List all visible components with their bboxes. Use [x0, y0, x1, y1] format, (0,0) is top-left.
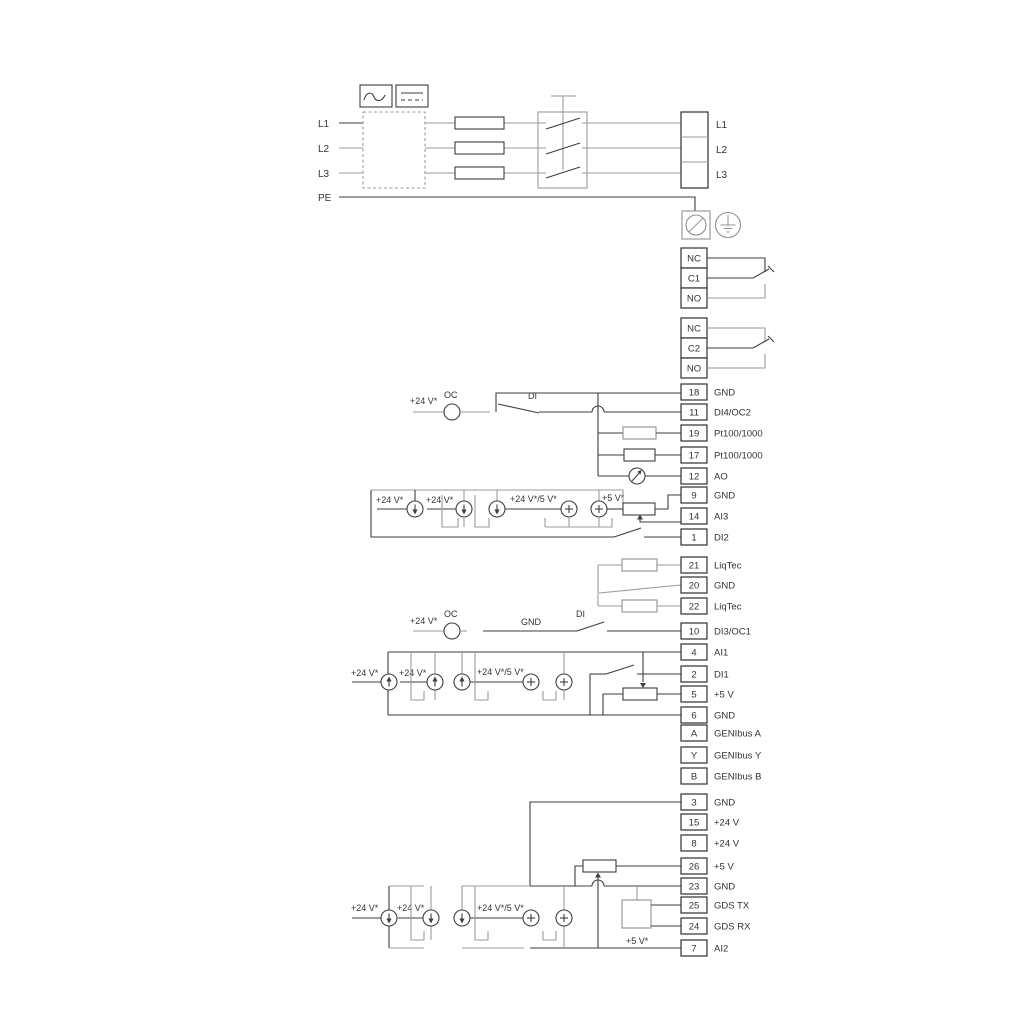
terminal-number: 20: [689, 581, 700, 592]
terminal-number: 12: [689, 472, 700, 483]
open-collector-icon: [444, 623, 460, 639]
terminal-number: 5: [691, 690, 696, 701]
terminal-number: 18: [689, 388, 700, 399]
ai2-supply-block: +24 V* +24 V*: [351, 886, 572, 948]
resistor: [624, 449, 655, 461]
terminal-label: AO: [714, 472, 728, 483]
terminal-number: 14: [689, 512, 700, 523]
mains-section: L1 L2 L3 PE: [318, 85, 741, 239]
terminal-number: 2: [691, 670, 696, 681]
dc-symbol-icon: [396, 85, 428, 107]
terminal-label: GDS TX: [714, 901, 750, 912]
terminal-number: 19: [689, 429, 700, 440]
screw-terminal-icon: [682, 211, 710, 239]
terminal-label: +5 V: [714, 862, 734, 873]
relay-terminal: NO: [687, 364, 701, 375]
terminal-label: DI4/OC2: [714, 408, 751, 419]
voltage-source-icon: [561, 501, 577, 517]
wiring-diagram-page: L1 L2 L3 PE: [0, 0, 1024, 1024]
relay-terminal: C2: [688, 344, 700, 355]
v24or5-label: +24 V*/5 V*: [477, 903, 524, 913]
relay-terminal: NC: [687, 324, 701, 335]
current-source-icon: [381, 674, 397, 690]
terminal-groupA: 18GND 11DI4/OC2 19Pt100/1000 17Pt100/100…: [681, 384, 763, 545]
voltage-source-icon: [556, 910, 572, 926]
relay-terminal: NC: [687, 254, 701, 265]
v24-label: +24 V*: [351, 903, 379, 913]
relay2-section: NC C2 NO: [681, 318, 774, 378]
v5-label: +5 V*: [602, 493, 625, 503]
gds-sensor-box: [622, 900, 651, 928]
fuse: [455, 167, 504, 179]
terminal-label: DI3/OC1: [714, 627, 751, 638]
ai1-supply-block: +24 V* +24 V*: [351, 652, 681, 715]
resistor: [623, 427, 656, 439]
current-source-icon: [456, 501, 472, 517]
terminal-label: GND: [714, 882, 735, 893]
terminal-number: 9: [691, 491, 696, 502]
emc-filter-box: [363, 112, 425, 188]
mains-left-label: L2: [318, 144, 330, 155]
mains-left-label: L1: [318, 119, 330, 130]
terminal-number: A: [691, 729, 698, 740]
potentiometer: [583, 860, 616, 872]
terminal-number: 6: [691, 711, 696, 722]
mains-left-label: L3: [318, 169, 330, 180]
terminal-label: LiqTec: [714, 561, 742, 572]
terminal-label: +24 V: [714, 818, 740, 829]
terminal-number: 23: [689, 882, 700, 893]
terminal-label: Pt100/1000: [714, 429, 763, 440]
terminal-number: 17: [689, 451, 700, 462]
terminal-label: GND: [714, 798, 735, 809]
terminal-number: 7: [691, 944, 696, 955]
terminal-label: GENIbus B: [714, 772, 762, 783]
di-label: DI: [576, 609, 585, 619]
terminal-number: 10: [689, 627, 700, 638]
oc-label: OC: [444, 390, 458, 400]
terminal-group-liqtec: 21LiqTec 20GND 22LiqTec: [681, 557, 742, 614]
resistor: [622, 559, 657, 571]
terminal-label: GDS RX: [714, 922, 751, 933]
terminal-label: DI1: [714, 670, 729, 681]
current-source-icon: [489, 501, 505, 517]
current-source-icon: [407, 501, 423, 517]
v24-label: +24 V*: [399, 668, 427, 678]
terminal-number: 4: [691, 648, 696, 659]
groupB-wiring: +24 V* OC GND DI +24 V* +24 V*: [351, 609, 681, 715]
ac-symbol-icon: [360, 85, 392, 107]
wiper-arrow: [640, 683, 646, 688]
terminal-label: LiqTec: [714, 602, 742, 613]
voltage-source-icon: [523, 910, 539, 926]
relay-terminal: C1: [688, 274, 700, 285]
terminal-label: AI1: [714, 648, 728, 659]
resistor: [622, 600, 657, 612]
terminal-number: Y: [691, 751, 698, 762]
groupA-wiring: +24 V* OC DI: [371, 390, 681, 537]
terminal-label: GND: [714, 711, 735, 722]
earth-ground-icon: [716, 213, 741, 238]
v5-label: +5 V*: [626, 936, 649, 946]
terminal-label: GND: [714, 491, 735, 502]
groupC-wiring: +5 V* +24 V* +24 V*: [351, 802, 681, 948]
fuse: [455, 142, 504, 154]
mains-right-label: L1: [716, 120, 728, 131]
terminal-label: +24 V: [714, 839, 740, 850]
open-collector-icon: [444, 404, 460, 420]
v24-label: +24 V*: [376, 495, 404, 505]
terminal-label: AI2: [714, 944, 728, 955]
liqtec-wiring: [598, 559, 681, 612]
gnd-label: GND: [521, 617, 542, 627]
v24-label: +24 V*: [351, 668, 379, 678]
terminal-number: B: [691, 772, 697, 783]
oc-label: OC: [444, 609, 458, 619]
voltage-source-icon: [556, 674, 572, 690]
mains-left-label: PE: [318, 193, 332, 204]
current-source-icon: [454, 910, 470, 926]
terminal-number: 26: [689, 862, 700, 873]
wiper-arrow: [595, 873, 601, 878]
current-source-icon: [381, 910, 397, 926]
current-source-icon: [423, 910, 439, 926]
terminal-label: +5 V: [714, 690, 734, 701]
relay1-section: NC C1 NO: [681, 248, 774, 308]
terminal-groupC: 3GND 15+24 V 8+24 V 26+5 V 23GND 25GDS T…: [681, 794, 751, 956]
wiring-diagram: L1 L2 L3 PE: [0, 0, 1024, 1024]
v24-label: +24 V*: [426, 495, 454, 505]
terminal-groupB: 10DI3/OC1 4AI1 2DI1 5+5 V 6GND AGENIbus …: [681, 623, 762, 784]
terminal-number: 3: [691, 798, 696, 809]
v24or5-label: +24 V*/5 V*: [477, 667, 524, 677]
terminal-number: 8: [691, 839, 696, 850]
relay-changeover-contact: [707, 328, 774, 368]
relay-changeover-contact: [707, 258, 774, 298]
ai3-supply-block: +24 V* +24 V*: [371, 490, 681, 537]
terminal-label: GND: [714, 581, 735, 592]
relay-terminal: NO: [687, 294, 701, 305]
terminal-label: DI2: [714, 533, 729, 544]
current-source-icon: [427, 674, 443, 690]
terminal-label: GENIbus A: [714, 729, 762, 740]
mains-terminal-block: [681, 112, 708, 188]
terminal-number: 1: [691, 533, 696, 544]
terminal-number: 22: [689, 602, 700, 613]
v24or5-label: +24 V*/5 V*: [510, 494, 557, 504]
terminal-number: 25: [689, 901, 700, 912]
voltage-source-icon: [591, 501, 607, 517]
potentiometer: [623, 503, 655, 515]
v24-label: +24 V*: [410, 396, 438, 406]
current-source-icon: [454, 674, 470, 690]
mains-right-label: L2: [716, 145, 728, 156]
terminal-label: GENIbus Y: [714, 751, 762, 762]
ao-meter-icon: [629, 468, 645, 484]
terminal-number: 21: [689, 561, 700, 572]
v24-label: +24 V*: [410, 616, 438, 626]
potentiometer: [623, 688, 657, 700]
fuse: [455, 117, 504, 129]
terminal-number: 24: [689, 922, 700, 933]
terminal-number: 15: [689, 818, 700, 829]
terminal-label: Pt100/1000: [714, 451, 763, 462]
disconnect-switch: [538, 96, 587, 188]
voltage-source-icon: [523, 674, 539, 690]
pe-earth-connection: [339, 197, 741, 239]
terminal-number: 11: [689, 408, 699, 419]
terminal-label: GND: [714, 388, 735, 399]
mains-right-label: L3: [716, 170, 728, 181]
terminal-label: AI3: [714, 512, 728, 523]
